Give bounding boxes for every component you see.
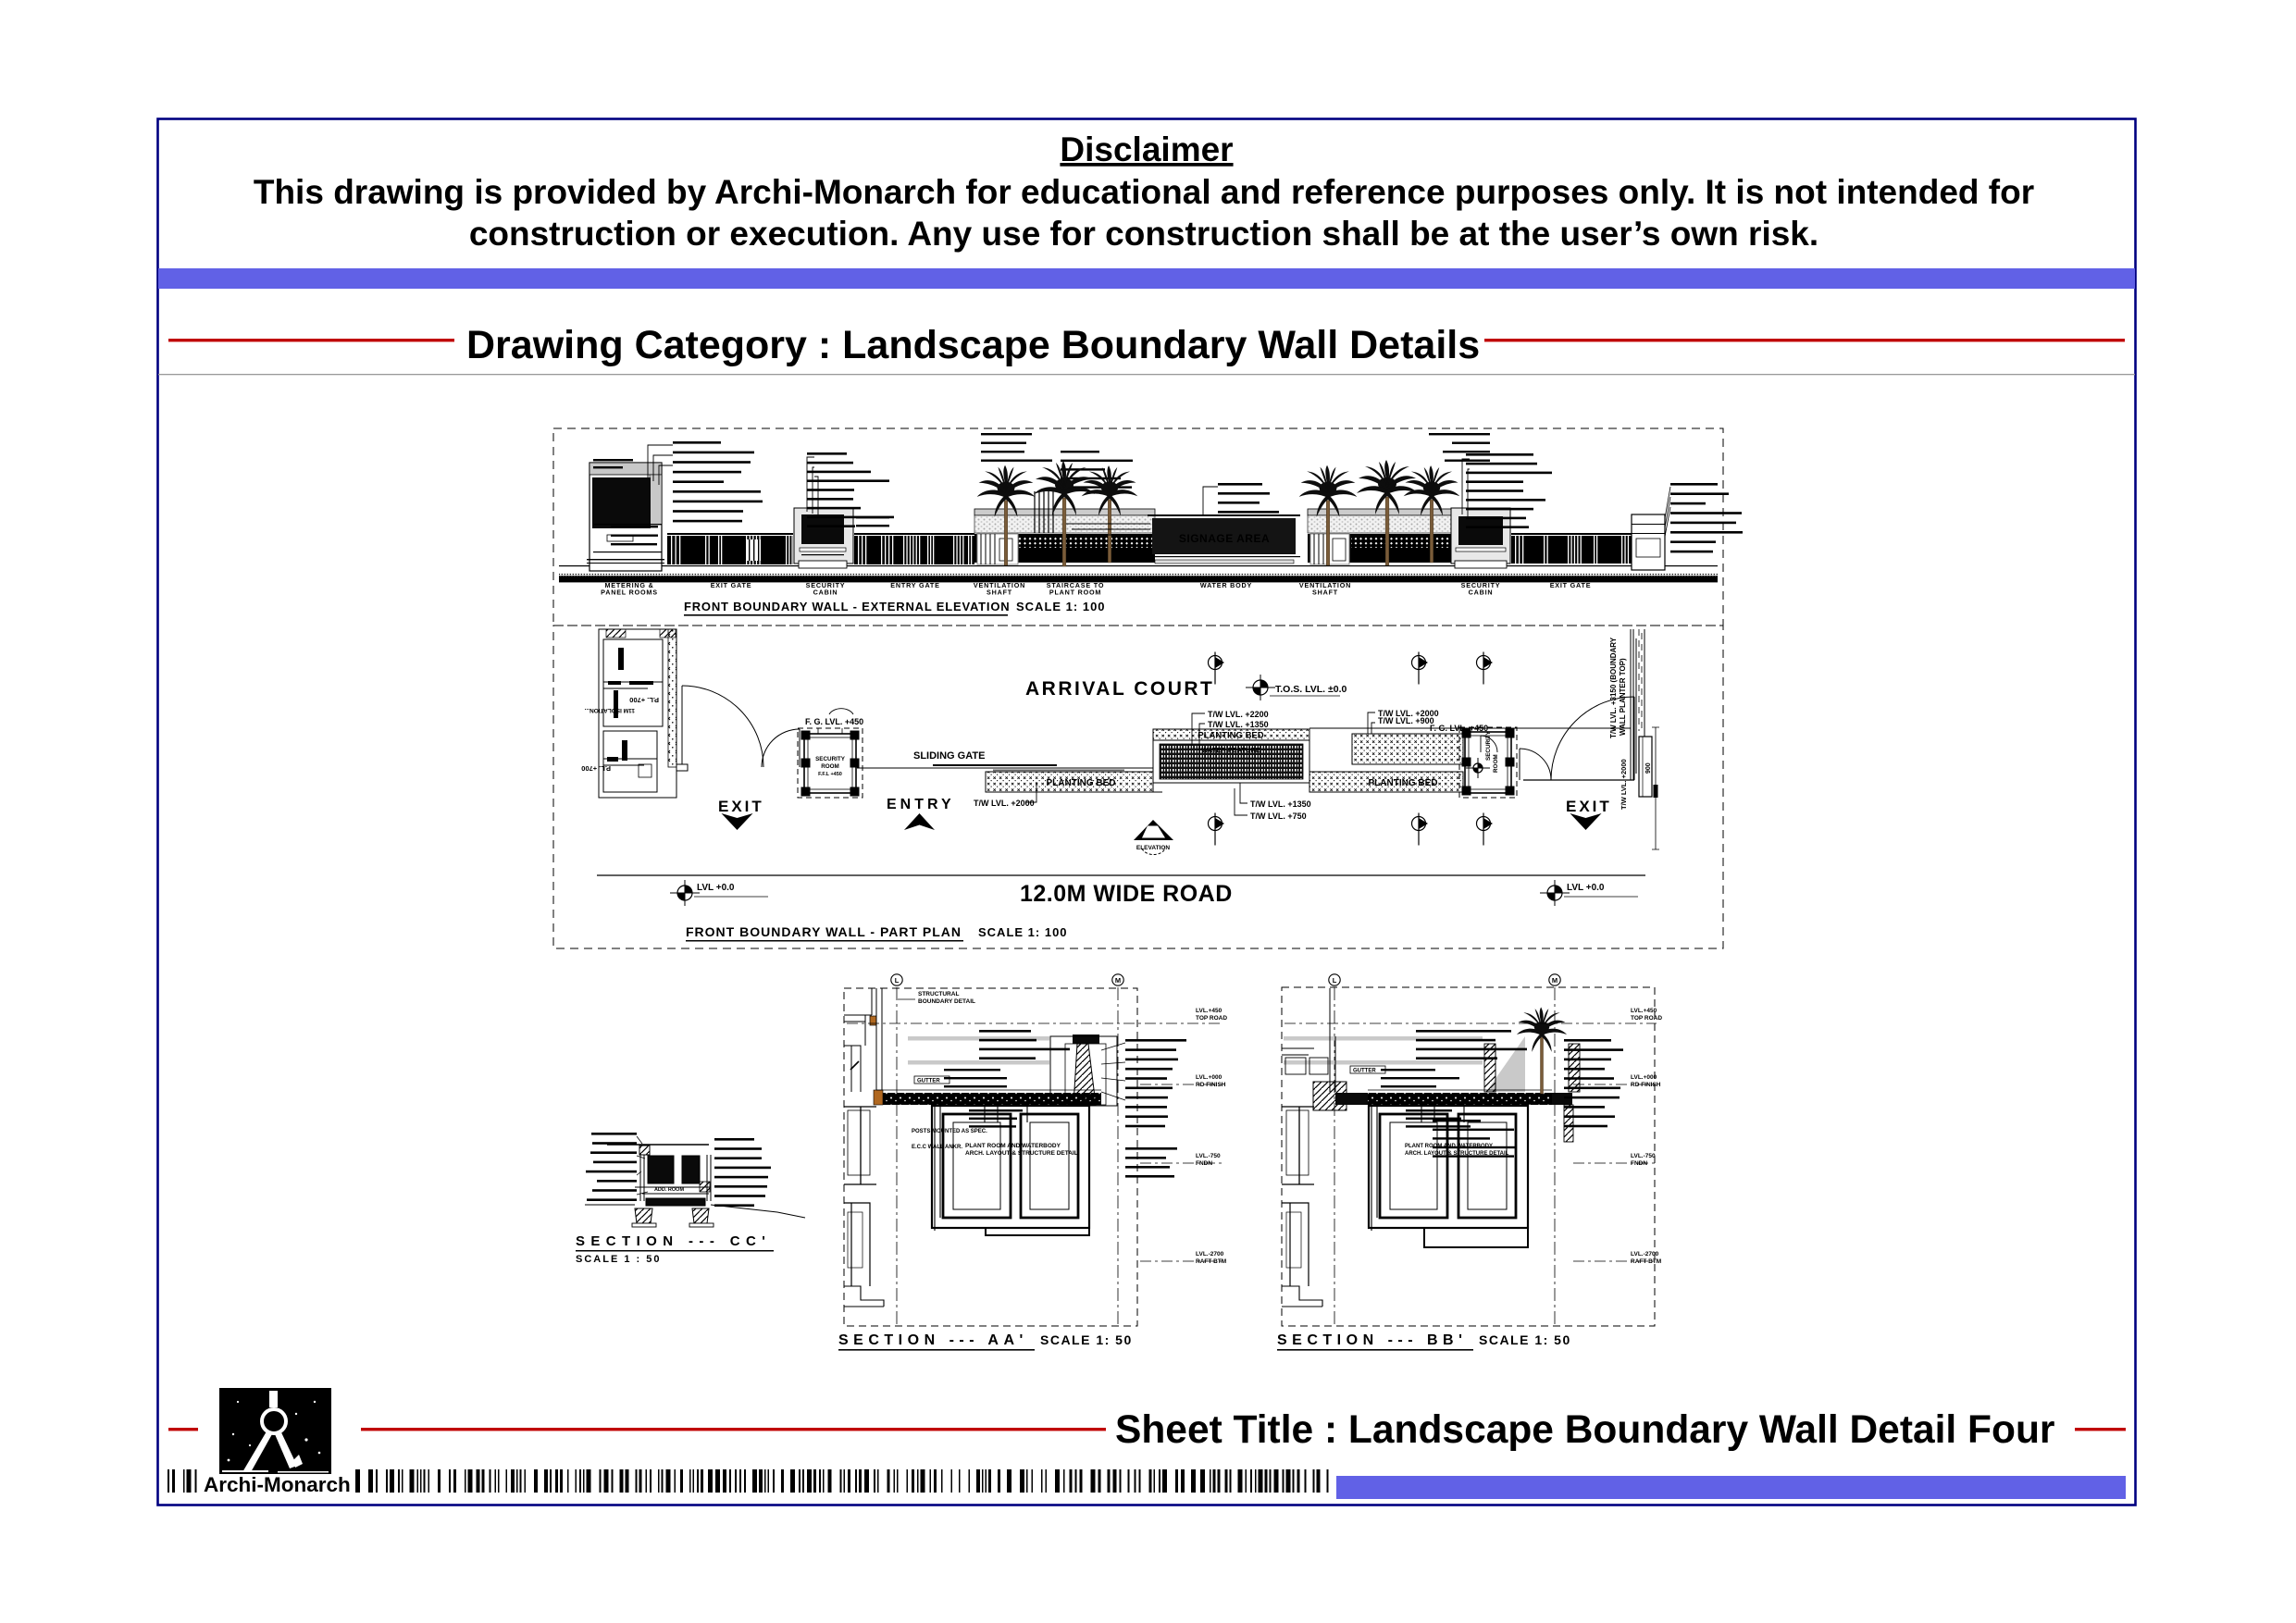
svg-text:PLANTING BED: PLANTING BED [1198,731,1263,741]
svg-text:PANEL ROOMS: PANEL ROOMS [601,588,658,597]
svg-text:Archi-Monarch: Archi-Monarch [204,1473,351,1496]
svg-text:ARCH. LAYOUT & STRUCTURE DETAI: ARCH. LAYOUT & STRUCTURE DETAIL [965,1150,1078,1157]
svg-text:SECURITY: SECURITY [815,756,846,762]
svg-text:T/W LVL. +2000: T/W LVL. +2000 [974,799,1035,808]
svg-text:SCALE 1: 100: SCALE 1: 100 [978,925,1068,939]
svg-text:TOP ROAD: TOP ROAD [1631,1015,1662,1022]
svg-text:ELEVATION: ELEVATION [1136,845,1171,851]
svg-text:SCALE 1: 100: SCALE 1: 100 [1016,600,1106,613]
svg-text:M: M [1115,976,1121,985]
svg-text:LVL +0.0: LVL +0.0 [697,883,735,893]
svg-text:SECTION --- CC': SECTION --- CC' [576,1233,771,1249]
svg-text:FNDN: FNDN [1196,1160,1212,1167]
svg-text:FNDN: FNDN [1631,1160,1647,1167]
svg-text:12.0M WIDE ROAD: 12.0M WIDE ROAD [1020,881,1233,907]
svg-text:RAFT BTM: RAFT BTM [1196,1258,1226,1265]
svg-text:SCALE 1: 50: SCALE 1: 50 [1479,1332,1571,1347]
svg-text:SECURITY: SECURITY [1485,730,1492,761]
svg-text:T/W LVL. +1350: T/W LVL. +1350 [1250,799,1311,809]
svg-text:T.O.S. LVL. ±0.0: T.O.S. LVL. ±0.0 [1275,684,1347,695]
svg-text:ARRIVAL COURT: ARRIVAL COURT [1025,678,1214,700]
svg-text:ENTRY GATE: ENTRY GATE [890,581,939,589]
svg-text:EXIT GATE: EXIT GATE [711,581,752,589]
svg-text:EXIT: EXIT [1566,798,1612,815]
svg-text:POSTS MOUNTED AS SPEC.: POSTS MOUNTED AS SPEC. [912,1129,987,1134]
svg-text:F.F.L +450: F.F.L +450 [818,772,842,777]
svg-text:PLANTING BED: PLANTING BED [1047,778,1116,788]
svg-text:E.C.C WALL ANKR.: E.C.C WALL ANKR. [912,1145,962,1150]
svg-text:EXIT GATE: EXIT GATE [1550,581,1592,589]
svg-text:T/W LVL. +1350: T/W LVL. +1350 [1208,720,1269,729]
svg-text:GUTTER: GUTTER [1353,1069,1376,1074]
svg-text:LVL.-750: LVL.-750 [1196,1153,1221,1159]
svg-text:STRUCTURAL: STRUCTURAL [918,991,959,997]
svg-text:WATER BODY: WATER BODY [1200,581,1252,589]
svg-text:ADD. ROOM: ADD. ROOM [654,1187,685,1193]
svg-text:Disclaimer: Disclaimer [1060,130,1233,168]
svg-text:L: L [1333,976,1337,985]
svg-text:LVL.-750: LVL.-750 [1631,1153,1656,1159]
svg-text:LVL.+000: LVL.+000 [1196,1074,1222,1081]
svg-text:SCALE 1 : 50: SCALE 1 : 50 [576,1254,661,1265]
svg-text:LVL.+450: LVL.+450 [1631,1008,1657,1014]
svg-text:L: L [895,976,900,985]
svg-text:T/W LVL. +750: T/W LVL. +750 [1250,811,1307,821]
svg-text:SECTION --- BB': SECTION --- BB' [1277,1332,1467,1348]
svg-text:Drawing Category : Landscape B: Drawing Category : Landscape Boundary Wa… [466,323,1480,367]
svg-text:CABIN: CABIN [813,588,838,597]
svg-text:SHAFT: SHAFT [1312,588,1338,597]
svg-text:T/W LVL. +2200: T/W LVL. +2200 [1208,710,1269,719]
svg-text:EXIT: EXIT [718,798,764,815]
svg-text:RD FINISH: RD FINISH [1196,1082,1226,1088]
svg-text:This drawing is provided by Ar: This drawing is provided by Archi-Monarc… [254,173,2034,211]
svg-text:ENTRY: ENTRY [887,797,955,812]
svg-text:900: 900 [1645,762,1652,774]
svg-text:LVL.+000: LVL.+000 [1631,1074,1657,1081]
svg-text:SECTION --- AA': SECTION --- AA' [838,1332,1028,1348]
svg-text:ROOM: ROOM [821,763,839,770]
svg-text:SHAFT: SHAFT [987,588,1012,597]
svg-text:F. G. LVL. +450: F. G. LVL. +450 [805,717,863,726]
svg-text:construction or execution. Any: construction or execution. Any use for c… [469,215,1818,253]
svg-text:TOP ROAD: TOP ROAD [1196,1015,1227,1022]
svg-text:Sheet Title : Landscape Bounda: Sheet Title : Landscape Boundary Wall De… [1115,1408,2054,1452]
svg-text:PLANT ROOM AND WATERBODY: PLANT ROOM AND WATERBODY [965,1143,1061,1149]
svg-text:T/W LVL. +3150 (BOUNDARY: T/W LVL. +3150 (BOUNDARY [1609,637,1618,738]
svg-text:T/W LVL. +2000: T/W LVL. +2000 [1620,759,1628,810]
svg-text:11M ISOLATION...: 11M ISOLATION... [584,707,635,713]
svg-text:RD FINISH: RD FINISH [1631,1082,1661,1088]
svg-text:PLANTING BED: PLANTING BED [1369,778,1438,788]
svg-text:FRONT BOUNDARY WALL - EXTERNAL: FRONT BOUNDARY WALL - EXTERNAL ELEVATION [684,600,1010,613]
svg-text:WALL PLANTER TOP): WALL PLANTER TOP) [1619,658,1627,736]
svg-text:M: M [1552,976,1558,985]
svg-text:BOUNDARY DETAIL: BOUNDARY DETAIL [918,998,975,1005]
svg-text:GUTTER: GUTTER [917,1079,940,1084]
svg-text:PLANT ROOM: PLANT ROOM [1049,588,1101,597]
svg-text:P.L. +700: P.L. +700 [629,696,659,704]
svg-text:SLIDING GATE: SLIDING GATE [913,750,985,762]
svg-text:SIGNAGE AREA: SIGNAGE AREA [1179,532,1270,545]
svg-text:P.L. +700: P.L. +700 [581,764,611,773]
svg-text:FRONT BOUNDARY WALL - PART PLA: FRONT BOUNDARY WALL - PART PLAN [686,924,962,939]
svg-text:WATER FEATURE: WATER FEATURE [1201,746,1260,754]
svg-text:LVL.-2700: LVL.-2700 [1196,1251,1224,1258]
svg-text:T/W LVL. +900: T/W LVL. +900 [1378,716,1434,725]
svg-text:RAFT BTM: RAFT BTM [1631,1258,1661,1265]
svg-text:LVL +0.0: LVL +0.0 [1567,883,1605,893]
svg-text:LVL.+450: LVL.+450 [1196,1008,1222,1014]
svg-text:ROOM: ROOM [1493,754,1499,773]
svg-text:SCALE 1: 50: SCALE 1: 50 [1040,1332,1133,1347]
svg-text:CABIN: CABIN [1469,588,1494,597]
svg-text:LVL.-2700: LVL.-2700 [1631,1251,1659,1258]
